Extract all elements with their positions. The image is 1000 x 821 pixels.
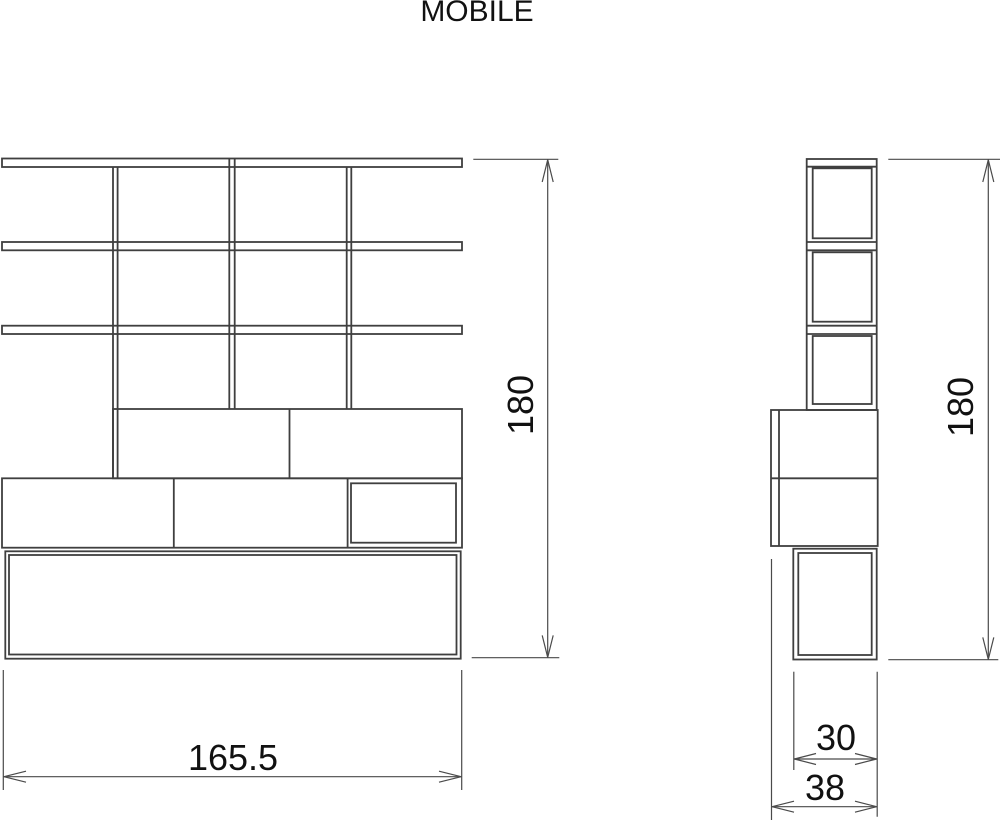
side-compartment-inner	[813, 252, 872, 321]
front-base-outer	[5, 551, 460, 658]
drawing-canvas: MOBILE 180 165.5 180 30 38	[0, 0, 1000, 821]
side-height-value: 180	[940, 377, 981, 437]
side-compartment-inner	[813, 336, 872, 404]
side-view	[771, 159, 878, 660]
front-wide-cabinet	[2, 478, 462, 547]
side-top-depth-value: 30	[816, 717, 856, 758]
side-compartment-inner	[813, 168, 872, 238]
front-mid-cabinet	[113, 409, 462, 478]
front-shelf-top	[2, 159, 462, 168]
front-shelf-lower	[2, 326, 462, 334]
side-base-depth-value: 38	[805, 767, 845, 808]
front-width-value: 165.5	[188, 737, 278, 778]
technical-drawing-page: MOBILE 180 165.5 180 30 38	[0, 0, 1000, 821]
front-view	[2, 159, 462, 659]
side-column	[807, 159, 877, 410]
front-base-inner	[9, 555, 457, 655]
side-base-inner	[798, 553, 871, 655]
front-shelf-middle	[2, 242, 462, 250]
side-base-outer	[793, 549, 876, 660]
page-title: MOBILE	[420, 0, 533, 28]
front-drawer-front	[351, 483, 456, 542]
front-height-value: 180	[500, 375, 541, 435]
